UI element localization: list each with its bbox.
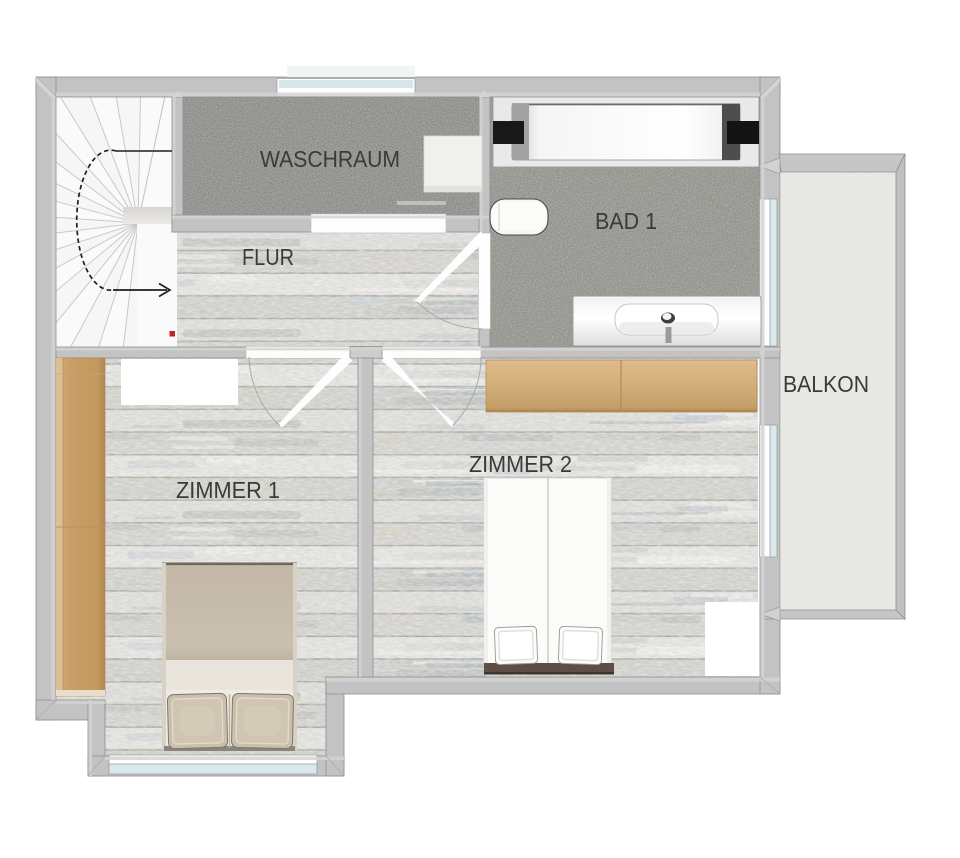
svg-text:ZIMMER 2: ZIMMER 2 bbox=[469, 451, 572, 477]
svg-text:BALKON: BALKON bbox=[783, 371, 869, 397]
svg-text:ZIMMER 1: ZIMMER 1 bbox=[176, 477, 280, 503]
svg-text:FLUR: FLUR bbox=[242, 244, 294, 270]
svg-text:BAD 1: BAD 1 bbox=[595, 208, 657, 234]
svg-text:WASCHRAUM: WASCHRAUM bbox=[260, 146, 400, 172]
